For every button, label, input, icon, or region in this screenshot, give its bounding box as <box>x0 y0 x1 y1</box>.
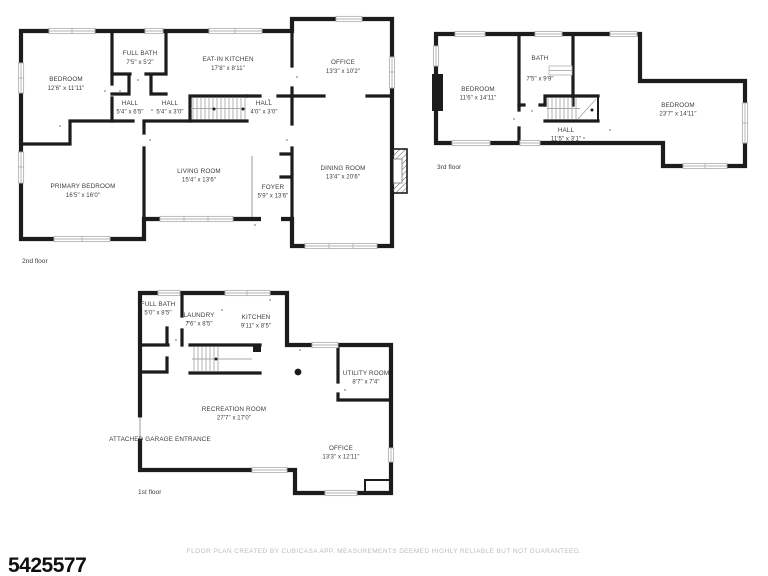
room-label-foyer: FOYER 5'9" x 13'6" <box>258 184 289 200</box>
listing-id: 5425577 <box>8 554 86 576</box>
room-dims: 5'0" x 8'5" <box>144 311 171 317</box>
room-name: LAUNDRY <box>183 312 215 319</box>
room-label-office-2nd: OFFICE 13'3" x 10'2" <box>326 59 360 75</box>
room-label-living-room: LIVING ROOM 15'4" x 13'6" <box>177 168 221 184</box>
outer-walls <box>21 19 392 246</box>
disclaimer-text: FLOOR PLAN CREATED BY CUBICASA APP. MEAS… <box>187 548 581 555</box>
room-label-hall-a: HALL 5'4" x 6'5" <box>116 100 143 116</box>
floor-label-2nd: 2nd floor <box>22 258 48 265</box>
room-name: FOYER <box>262 184 285 191</box>
room-dims: 23'7" x 14'11" <box>659 112 696 118</box>
room-label-recreation-room: RECREATION ROOM 27'7" x 17'0" <box>202 406 266 422</box>
room-name: BEDROOM <box>49 76 83 83</box>
room-name: HALL <box>256 100 273 107</box>
room-dims: 13'4" x 20'6" <box>326 175 360 181</box>
room-label-hall-b: HALL 5'4" x 3'0" <box>156 100 183 116</box>
staircase <box>191 98 246 120</box>
room-name: FULL BATH <box>123 50 158 57</box>
staircase <box>192 345 261 371</box>
room-dims: 8'7" x 7'4" <box>352 380 379 386</box>
room-label-hall-c: HALL 4'0" x 3'0" <box>250 100 277 116</box>
room-dims: 5'4" x 6'5" <box>116 110 143 116</box>
room-label-utility-room: UTILITY ROOM 8'7" x 7'4" <box>343 370 389 386</box>
floor-label-3rd: 3rd floor <box>437 164 462 171</box>
room-dims: 7'6" x 8'5" <box>185 322 212 328</box>
door-marks <box>59 76 298 226</box>
fireplace <box>392 149 407 193</box>
room-name: DINING ROOM <box>320 165 365 172</box>
room-dims: 13'3" x 10'2" <box>326 69 360 75</box>
room-name: OFFICE <box>331 59 355 66</box>
room-label-bedroom-left: BEDROOM 11'6" x 14'11" <box>460 86 497 102</box>
floor-label-1st: 1st floor <box>138 489 162 496</box>
room-dims: 13'3" x 12'11" <box>322 455 359 461</box>
floor-plan-1st: FULL BATH 5'0" x 8'5" LAUNDRY 7'6" x 8'5… <box>109 290 393 496</box>
room-label-bedroom: BEDROOM 12'6" x 11'11" <box>48 76 85 92</box>
room-dims: 5'4" x 3'0" <box>156 110 183 116</box>
floor-plan-2nd: BEDROOM 12'6" x 11'11" FULL BATH 7'5" x … <box>18 16 407 265</box>
room-dims: 11'6" x 14'11" <box>460 96 497 102</box>
room-name: HALL <box>162 100 179 107</box>
floor-plan-drawing: BEDROOM 12'6" x 11'11" FULL BATH 7'5" x … <box>0 0 768 576</box>
room-name: KITCHEN <box>242 314 271 321</box>
room-label-office-1st: OFFICE 13'3" x 12'11" <box>322 445 359 461</box>
windows <box>18 16 394 248</box>
room-dims: 12'6" x 11'11" <box>48 86 85 92</box>
room-name: OFFICE <box>329 445 353 452</box>
chimney <box>432 74 443 111</box>
room-label-full-bath: FULL BATH 7'5" x 5'2" <box>123 50 158 66</box>
room-dims: 4'0" x 3'0" <box>250 110 277 116</box>
room-dims: 27'7" x 17'0" <box>217 416 251 422</box>
floor-plan-page: BEDROOM 12'6" x 11'11" FULL BATH 7'5" x … <box>0 0 768 576</box>
room-dims: 7'5" x 5'2" <box>126 60 153 66</box>
room-name: LIVING ROOM <box>177 168 221 175</box>
door-marks <box>513 110 611 139</box>
room-label-primary-bedroom: PRIMARY BEDROOM 16'5" x 16'0" <box>51 183 116 199</box>
room-name: PRIMARY BEDROOM <box>51 183 116 190</box>
room-name: HALL <box>122 100 139 107</box>
room-dims: 17'8" x 8'11" <box>211 66 245 72</box>
support-column <box>295 369 302 376</box>
room-name: UTILITY ROOM <box>343 370 389 377</box>
room-dims: 11'5" x 3'1" <box>551 137 581 143</box>
room-name: BEDROOM <box>461 86 495 93</box>
bath-vanity <box>549 66 572 75</box>
room-name: BATH <box>532 55 549 62</box>
room-name: BEDROOM <box>661 102 695 109</box>
room-name: HALL <box>558 127 575 134</box>
room-name: RECREATION ROOM <box>202 406 266 413</box>
room-label-laundry: LAUNDRY 7'6" x 8'5" <box>183 312 215 328</box>
room-label-eat-in-kitchen: EAT-IN KITCHEN 17'8" x 8'11" <box>202 56 254 72</box>
room-dims: 5'9" x 13'6" <box>258 194 289 200</box>
room-label-hall-3rd: HALL 11'5" x 3'1" <box>551 127 581 143</box>
room-dims: 9'11" x 8'5" <box>241 324 271 330</box>
room-label-kitchen: KITCHEN 9'11" x 8'5" <box>241 314 271 330</box>
floor-plan-3rd: BEDROOM 11'6" x 14'11" BATH 7'5" x 9'9" … <box>432 31 748 171</box>
garage-entrance-label: ATTACHED GARAGE ENTRANCE <box>109 436 211 443</box>
room-dims: 15'4" x 13'6" <box>182 178 216 184</box>
room-name: FULL BATH <box>141 301 176 308</box>
room-dims: 7'5" x 9'9" <box>526 77 553 83</box>
room-dims: 16'5" x 16'0" <box>66 193 100 199</box>
room-label-bedroom-right: BEDROOM 23'7" x 14'11" <box>659 102 696 118</box>
room-name: EAT-IN KITCHEN <box>202 56 254 63</box>
room-label-dining-room: DINING ROOM 13'4" x 20'6" <box>320 165 365 181</box>
room-label-full-bath-1st: FULL BATH 5'0" x 8'5" <box>141 301 176 317</box>
